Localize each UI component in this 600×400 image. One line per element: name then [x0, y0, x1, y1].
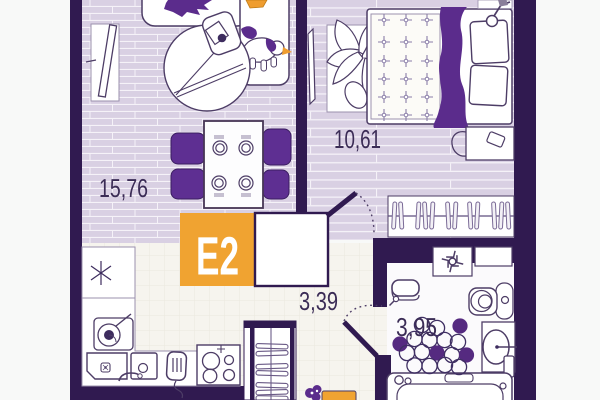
- svg-text:E2: E2: [196, 227, 239, 287]
- svg-text:15,76: 15,76: [99, 173, 148, 203]
- svg-text:10,61: 10,61: [334, 124, 381, 154]
- svg-text:3,95: 3,95: [396, 312, 437, 342]
- svg-text:3,39: 3,39: [299, 286, 338, 316]
